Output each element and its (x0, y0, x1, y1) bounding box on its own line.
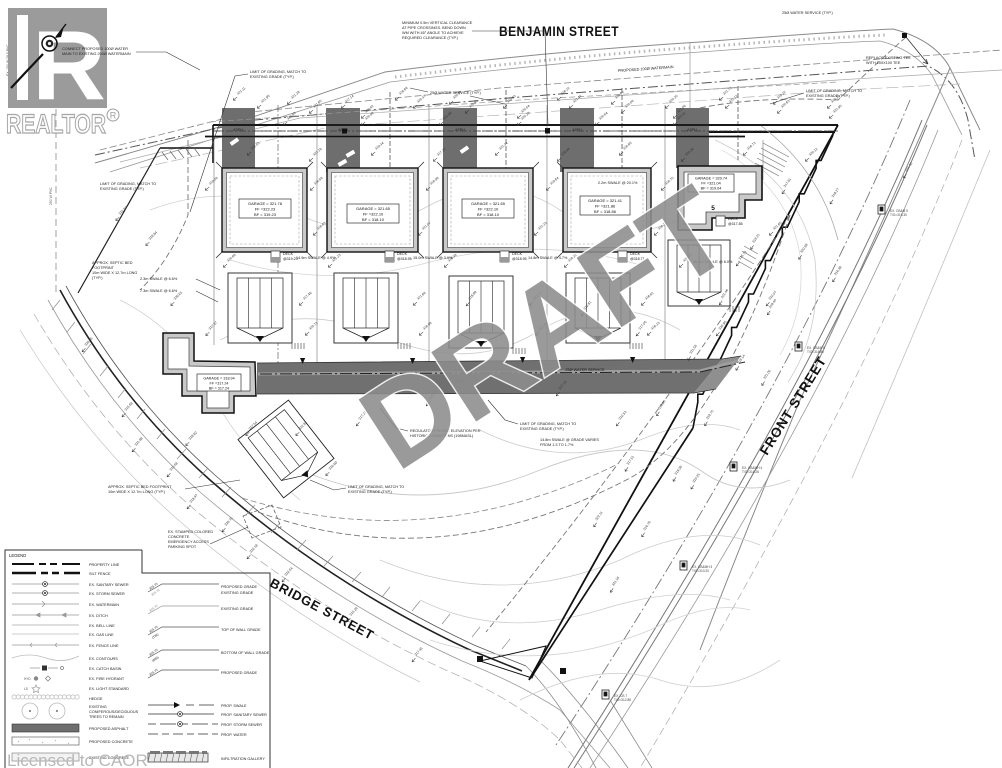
svg-text:LIMIT OF GRADING, MATCH TO: LIMIT OF GRADING, MATCH TO (100, 182, 156, 186)
svg-text:25Ø WATER SERVICE (TYP.): 25Ø WATER SERVICE (TYP.) (782, 11, 833, 15)
svg-text:T/G=313.20: T/G=313.20 (692, 569, 709, 573)
svg-text:EX. SANTARY SEWER: EX. SANTARY SEWER (89, 583, 129, 587)
svg-text:GARAGE = 321.65: GARAGE = 321.65 (471, 201, 506, 206)
svg-text:DECK: DECK (728, 217, 739, 221)
svg-text:EMERGENCY ACCESS: EMERGENCY ACCESS (168, 540, 209, 544)
svg-text:R: R (110, 111, 117, 121)
svg-text:EX. GAS LINE: EX. GAS LINE (89, 633, 114, 637)
svg-text:EXISTING GRADE (TYP.): EXISTING GRADE (TYP.) (520, 427, 565, 431)
svg-text:FOOTPRINT: FOOTPRINT (92, 266, 115, 270)
svg-text:(TYP.): (TYP.) (92, 276, 103, 280)
svg-text:EX. WATERMAIN: EX. WATERMAIN (89, 603, 119, 607)
svg-text:MAIN TO EXISTING 200Ø WATERMAI: MAIN TO EXISTING 200Ø WATERMAIN (62, 52, 131, 56)
svg-text:SILT FENCE: SILT FENCE (89, 572, 111, 576)
svg-text:BF = 318.10: BF = 318.10 (362, 217, 385, 222)
svg-text:LS: LS (24, 687, 28, 691)
svg-text:T/G=319.30: T/G=319.30 (890, 213, 907, 217)
svg-text:CONNECT PROPOSED 100Ø WATER: CONNECT PROPOSED 100Ø WATER (62, 47, 128, 51)
svg-text:EX. BELL LINE: EX. BELL LINE (89, 624, 115, 628)
svg-text:WITH 100X100 TEE: WITH 100X100 TEE (866, 61, 901, 65)
svg-text:ASPH: ASPH (455, 128, 465, 132)
svg-text:EX. FIRE HYDRANT: EX. FIRE HYDRANT (89, 677, 125, 681)
svg-text:EXISTING GRADE: EXISTING GRADE (221, 591, 254, 595)
svg-text:LIMIT OF GRADING, MATCH TO: LIMIT OF GRADING, MATCH TO (806, 89, 862, 93)
svg-text:2.3m SWALE @ 6.6%: 2.3m SWALE @ 6.6% (140, 277, 178, 281)
svg-text:CONCRETE: CONCRETE (168, 535, 190, 539)
svg-text:2.2m SWALE @ 20.1%: 2.2m SWALE @ 20.1% (598, 181, 638, 185)
svg-text:LIMIT OF GRADING, MATCH TO: LIMIT OF GRADING, MATCH TO (520, 422, 576, 426)
svg-text:TREES TO REMAIN: TREES TO REMAIN (89, 715, 124, 719)
svg-text:INFILTRATION GALLERY: INFILTRATION GALLERY (221, 757, 265, 761)
svg-text:PROPOSED ASPHALT: PROPOSED ASPHALT (89, 727, 129, 731)
svg-text:PROPERTY LINE: PROPERTY LINE (89, 563, 120, 567)
svg-text:TOP OF WALL GRADE: TOP OF WALL GRADE (221, 628, 261, 632)
svg-text:10m WIDE X 12.7m LONG (TYP.): 10m WIDE X 12.7m LONG (TYP.) (108, 490, 166, 494)
svg-text:EX. DITCH: EX. DITCH (89, 614, 108, 618)
svg-text:REPLACE EXISTING TEE: REPLACE EXISTING TEE (866, 56, 911, 60)
svg-text:PROP. STORM SEWER: PROP. STORM SEWER (221, 723, 262, 727)
svg-text:EX. CONTOURS: EX. CONTOURS (89, 657, 118, 661)
svg-text:ASPH: ASPH (687, 128, 697, 132)
svg-text:PROP. SANITARY SEWER: PROP. SANITARY SEWER (221, 713, 267, 717)
svg-text:WM WITH 45° ANGLE TO ACHIEVE: WM WITH 45° ANGLE TO ACHIEVE (402, 31, 464, 35)
svg-text:T/G=312.88: T/G=312.88 (614, 698, 631, 702)
svg-text:DECK: DECK (512, 252, 523, 256)
svg-text:EX. STAMPED COLORED: EX. STAMPED COLORED (168, 530, 213, 534)
svg-text:LIMIT OF GRADING, MATCH TO: LIMIT OF GRADING, MATCH TO (250, 70, 306, 74)
svg-text:@318.95: @318.95 (397, 257, 412, 261)
svg-text:APPROX. SEPTIC BED FOOTPRINT: APPROX. SEPTIC BED FOOTPRINT (108, 485, 172, 489)
svg-text:REQUIRED CLEARANCE (TYP.): REQUIRED CLEARANCE (TYP.) (402, 36, 459, 40)
svg-text:EXISTING GRADE (TYP.): EXISTING GRADE (TYP.) (806, 94, 851, 98)
svg-text:BF = 319.04: BF = 319.04 (701, 187, 722, 191)
svg-text:FROM 1.3 TO 1.7%: FROM 1.3 TO 1.7% (540, 443, 574, 447)
svg-text:HYD: HYD (24, 677, 31, 681)
svg-text:LIMIT OF GRADING, MATCH TO: LIMIT OF GRADING, MATCH TO (348, 485, 404, 489)
svg-text:T/G=316.80: T/G=316.80 (807, 350, 824, 354)
svg-text:FF =322.10: FF =322.10 (478, 207, 499, 212)
svg-text:EXISTING GRADE (TYP.): EXISTING GRADE (TYP.) (100, 187, 145, 191)
svg-text:BOTTOM OF WALL GRADE: BOTTOM OF WALL GRADE (221, 651, 270, 655)
svg-text:GARAGE = 320.74: GARAGE = 320.74 (695, 177, 727, 181)
svg-text:5: 5 (711, 205, 715, 212)
svg-text:FF =317.24: FF =317.24 (210, 382, 229, 386)
svg-text:FF =322.23: FF =322.23 (255, 207, 276, 212)
svg-text:14.8m SWALE @ GRADE VARIES: 14.8m SWALE @ GRADE VARIES (540, 438, 599, 442)
svg-text:PARKING SPOT: PARKING SPOT (168, 545, 197, 549)
svg-text:EXISTING GRADE (TYP.): EXISTING GRADE (TYP.) (348, 490, 393, 494)
svg-text:BF = 319.23: BF = 319.23 (254, 212, 277, 217)
svg-text:GARAGE = 318.94: GARAGE = 318.94 (203, 377, 234, 381)
svg-text:DECK: DECK (283, 252, 294, 256)
svg-text:GARAGE = 321.78: GARAGE = 321.78 (248, 201, 283, 206)
svg-text:PROPOSED GRADE: PROPOSED GRADE (221, 671, 258, 675)
svg-text:PROP. SWALE: PROP. SWALE (221, 704, 247, 708)
svg-text:REALTOR: REALTOR (6, 109, 106, 139)
svg-text:BF = 318.10: BF = 318.10 (477, 212, 500, 217)
svg-text:250 W PVC: 250 W PVC (49, 187, 53, 205)
svg-text:10m WIDE X 12.7m LONG: 10m WIDE X 12.7m LONG (92, 271, 137, 275)
svg-text:R: R (32, 11, 106, 121)
svg-text:FF =322.10: FF =322.10 (363, 212, 384, 217)
svg-text:EXISTING: EXISTING (89, 705, 107, 709)
svg-text:HEDGE: HEDGE (89, 697, 103, 701)
svg-text:PROPOSED CONCRETE: PROPOSED CONCRETE (89, 740, 133, 744)
svg-text:Licensed to CAOR: Licensed to CAOR (7, 751, 148, 768)
svg-text:AT PIPE CROSSINGS. BEND DOWN: AT PIPE CROSSINGS. BEND DOWN (402, 26, 466, 30)
svg-text:PROPOSED GRADE: PROPOSED GRADE (221, 585, 258, 589)
svg-text:EX. STORM SEWER: EX. STORM SEWER (89, 592, 125, 596)
svg-text:ASPH: ASPH (572, 128, 582, 132)
svg-text:APPROX. SEPTIC BED: APPROX. SEPTIC BED (92, 261, 133, 265)
svg-text:MINIMUM 0.5m VERTICAL CLEARANC: MINIMUM 0.5m VERTICAL CLEARANCE (402, 21, 473, 25)
svg-text:BF = 317.24: BF = 317.24 (209, 387, 229, 391)
svg-text:BENJAMIN STREET: BENJAMIN STREET (499, 24, 619, 39)
svg-text:GARAGE = 321.65: GARAGE = 321.65 (356, 206, 391, 211)
svg-text:EX. CATCH BASIN: EX. CATCH BASIN (89, 667, 122, 671)
svg-text:EX. FENCE LINE: EX. FENCE LINE (89, 644, 119, 648)
svg-text:EX. LIGHT STANDARD: EX. LIGHT STANDARD (89, 687, 129, 691)
svg-text:PROP. WATER: PROP. WATER (221, 733, 247, 737)
svg-text:T/G=314.26: T/G=314.26 (742, 470, 759, 474)
svg-text:ASPH: ASPH (233, 128, 243, 132)
svg-text:CONIFEROUS/DECIDUOUS: CONIFEROUS/DECIDUOUS (89, 710, 139, 714)
svg-text:EXISTING GRADE (TYP.): EXISTING GRADE (TYP.) (250, 75, 295, 79)
svg-text:DECK: DECK (397, 252, 408, 256)
svg-text:7.3m SWALE @ 6.6%: 7.3m SWALE @ 6.6% (140, 289, 178, 293)
svg-text:@317.85: @317.85 (728, 222, 743, 226)
svg-text:EXISTING GRADE: EXISTING GRADE (221, 607, 254, 611)
svg-text:LEGEND: LEGEND (9, 553, 26, 558)
svg-text:FF =321.04: FF =321.04 (701, 182, 721, 186)
